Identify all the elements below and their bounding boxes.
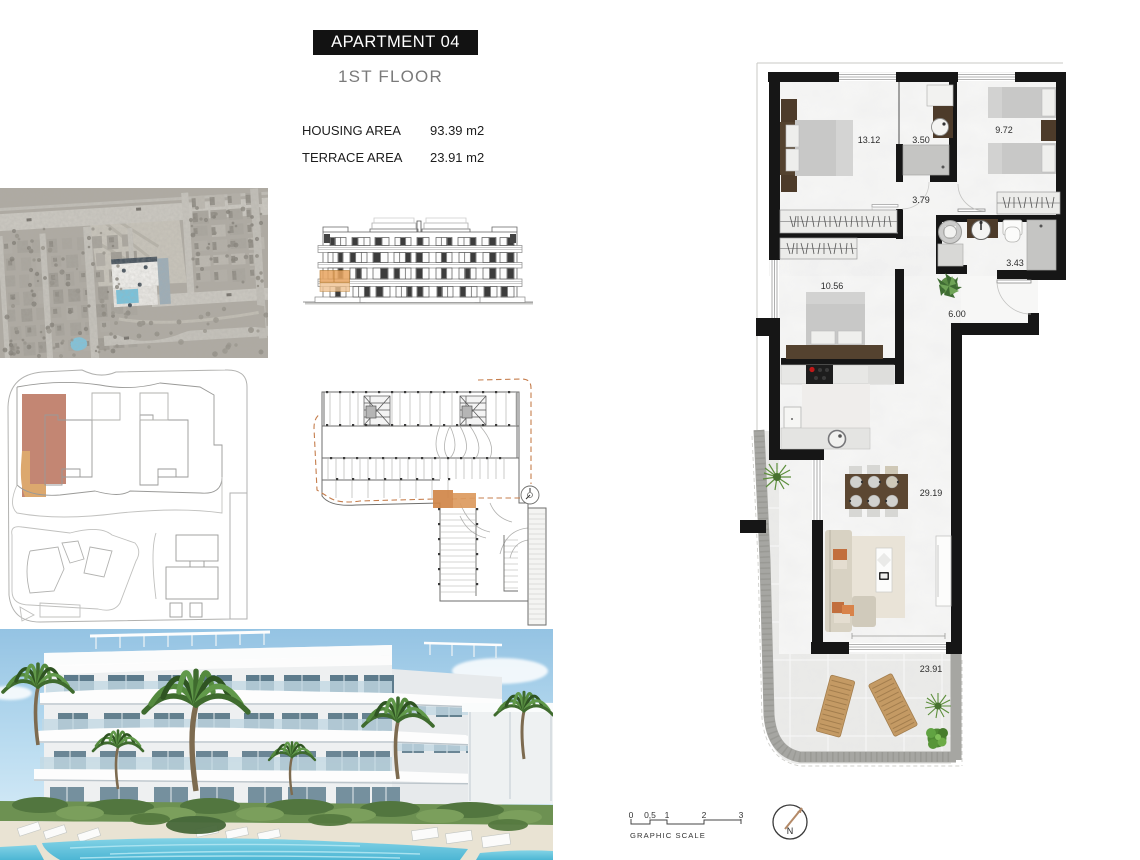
svg-text:0,5: 0,5 xyxy=(644,810,656,820)
svg-text:3.43: 3.43 xyxy=(1006,258,1024,268)
svg-text:N: N xyxy=(787,826,794,836)
svg-text:6.00: 6.00 xyxy=(948,309,966,319)
svg-text:2: 2 xyxy=(702,810,707,820)
svg-text:3.50: 3.50 xyxy=(912,135,930,145)
svg-text:GRAPHIC SCALE: GRAPHIC SCALE xyxy=(630,831,706,840)
svg-text:3.79: 3.79 xyxy=(912,195,930,205)
svg-text:23.91: 23.91 xyxy=(920,664,943,674)
svg-text:10.56: 10.56 xyxy=(821,281,844,291)
svg-text:3: 3 xyxy=(739,810,744,820)
svg-text:29.19: 29.19 xyxy=(920,488,943,498)
svg-text:9.72: 9.72 xyxy=(995,125,1013,135)
svg-text:13.12: 13.12 xyxy=(858,135,881,145)
svg-text:0: 0 xyxy=(629,810,634,820)
svg-text:1: 1 xyxy=(665,810,670,820)
